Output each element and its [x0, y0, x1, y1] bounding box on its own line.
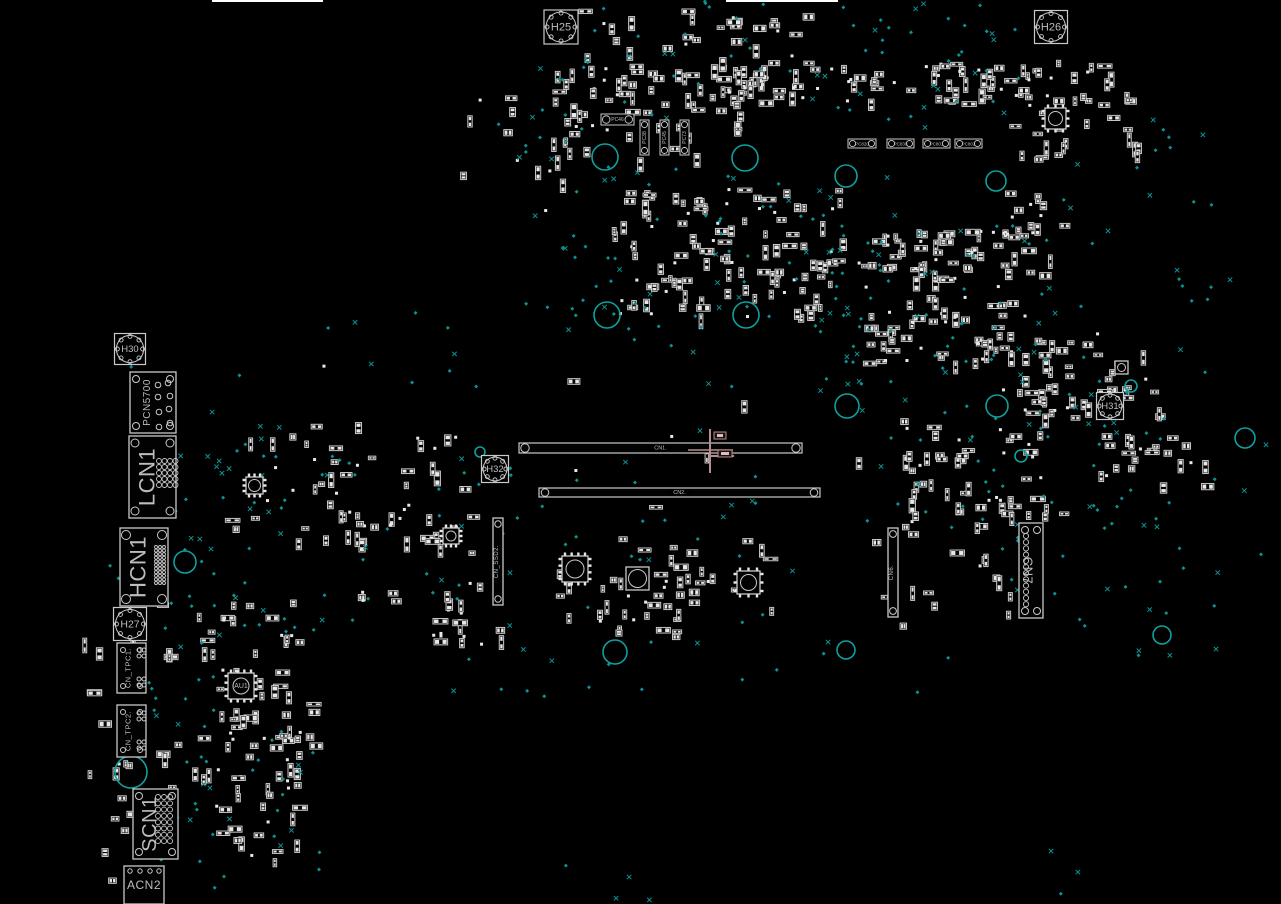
smd-part [958, 70, 961, 73]
smd-part [83, 638, 87, 653]
test-point [221, 496, 225, 500]
smd-part [1031, 455, 1034, 458]
smd-part [689, 589, 699, 595]
test-point [459, 524, 463, 528]
slot-cn2[interactable]: CN2. [539, 488, 820, 497]
test-point [227, 466, 231, 470]
smd-part [430, 462, 435, 475]
smd-part [627, 47, 633, 60]
test-point [278, 531, 282, 535]
smd-part [643, 193, 656, 197]
test-point [946, 17, 950, 21]
smd-part [642, 201, 648, 215]
smd-part [479, 99, 482, 102]
plated-hole-ring [174, 551, 196, 573]
smd-part [1027, 443, 1030, 446]
smd-part [633, 253, 638, 260]
smd-part [389, 524, 392, 527]
test-point [525, 689, 529, 693]
connector-cn_tpc1[interactable]: CN_TPC1. [117, 643, 146, 693]
connector-scn1[interactable]: SCN1 [133, 789, 178, 859]
smd-part [632, 241, 636, 251]
smd-part [663, 45, 672, 51]
smd-part [654, 593, 663, 598]
smd-part [932, 71, 937, 85]
test-point [247, 546, 251, 550]
smd-part [940, 64, 949, 69]
test-point [330, 454, 334, 458]
test-point [233, 596, 237, 600]
smd-part [790, 92, 796, 106]
test-point [669, 344, 673, 348]
smd-part [271, 438, 275, 451]
test-point [521, 647, 525, 651]
hole-label: H30 [121, 344, 138, 355]
smd-part [629, 17, 635, 31]
test-point [799, 214, 803, 218]
test-point [477, 482, 481, 486]
test-point [277, 425, 281, 429]
test-point [200, 559, 204, 563]
smd-part [674, 564, 688, 570]
test-point [1092, 504, 1096, 508]
smd-part [920, 347, 923, 350]
connector-cn_ssd2[interactable]: CN_SSD2. [493, 518, 503, 605]
smd-part [721, 87, 725, 98]
plated-hole-ring [592, 144, 618, 170]
smd-part [627, 133, 633, 142]
test-point [636, 34, 640, 38]
test-point [761, 205, 765, 209]
chip-label: AU1 [234, 683, 248, 690]
smd-part [217, 768, 220, 771]
test-point [227, 817, 231, 821]
connector-hcn1[interactable]: HCN1 [120, 528, 168, 606]
smd-part [290, 434, 296, 440]
test-point [740, 620, 744, 624]
test-point [1067, 392, 1071, 396]
smd-part [876, 332, 888, 336]
mounting-hole-h31[interactable]: H31 [1097, 393, 1124, 420]
test-point [978, 3, 982, 7]
smd-part [919, 464, 922, 467]
smd-part [1057, 60, 1061, 66]
pcb-boardview-canvas[interactable]: CN1.CN2.PCN5700LCN1HCN1CN_TPC1.CN_TPC2.S… [0, 0, 1281, 904]
smd-part [924, 453, 929, 465]
mounting-hole-h27[interactable]: H27 [114, 608, 147, 641]
smd-part [272, 686, 278, 699]
chip[interactable] [440, 525, 463, 548]
chip[interactable] [1115, 361, 1128, 374]
connector-cn6[interactable]: CN6. [888, 528, 898, 617]
smd-part [1011, 216, 1014, 219]
smd-part [1024, 315, 1027, 318]
plated-hole-ring [986, 171, 1006, 191]
mounting-hole-h32[interactable]: H32 [482, 456, 509, 483]
smd-part [650, 506, 663, 510]
smd-part [286, 692, 291, 704]
smd-part [964, 78, 968, 92]
smd-part [468, 116, 472, 127]
test-point [924, 510, 928, 514]
smd-part [638, 158, 644, 172]
smd-part [743, 285, 748, 295]
chip[interactable] [559, 553, 592, 586]
smd-part [635, 279, 638, 282]
test-point [1209, 203, 1213, 207]
test-point [210, 410, 214, 414]
smd-part [1008, 504, 1021, 508]
test-point [989, 358, 993, 362]
chip[interactable] [243, 474, 267, 498]
test-point [855, 352, 859, 356]
smd-part [999, 499, 1002, 502]
smd-part [734, 127, 742, 131]
smd-part [266, 499, 269, 502]
smd-part [305, 441, 309, 447]
smd-part [568, 148, 572, 159]
smd-part [694, 153, 700, 167]
test-point [822, 652, 826, 656]
smd-part [296, 640, 304, 645]
test-point [1259, 552, 1263, 556]
smd-part [99, 721, 112, 727]
test-point [296, 763, 300, 767]
test-point [730, 384, 734, 388]
connector-lcn1[interactable]: LCN1 [129, 436, 178, 518]
smd-part [914, 267, 917, 270]
smd-part [833, 259, 846, 263]
smd-part [1105, 474, 1108, 477]
smd-part [929, 319, 937, 324]
test-point [990, 31, 994, 35]
smd-part [1086, 403, 1092, 417]
chip[interactable] [734, 568, 764, 598]
smd-part [1009, 352, 1015, 366]
smd-part [804, 61, 814, 65]
smd-part [901, 335, 912, 341]
test-point [727, 249, 731, 253]
smd-part [1007, 611, 1011, 619]
smd-part [769, 290, 773, 299]
test-point [818, 388, 822, 392]
test-point [272, 834, 276, 838]
connector-cn7[interactable]: CN7 [1019, 523, 1043, 618]
test-point [243, 623, 247, 627]
smd-part [276, 772, 282, 781]
test-point [729, 503, 733, 507]
smd-part [800, 288, 805, 294]
test-point [369, 362, 373, 366]
smd-part [711, 65, 717, 79]
smd-part [644, 601, 647, 604]
connector-pc73[interactable]: PC73 [680, 120, 689, 155]
smd-part [1073, 97, 1077, 105]
connector-pc830[interactable]: PC830 [887, 139, 914, 148]
smd-part [1068, 341, 1074, 345]
test-point [108, 564, 112, 568]
connector-pc38[interactable]: PC38 [640, 120, 649, 155]
smd-part [830, 67, 833, 70]
test-point [851, 344, 855, 348]
smd-part [565, 119, 571, 126]
smd-part [610, 577, 616, 582]
test-point [515, 516, 519, 520]
connector-pc801[interactable]: PC801 [923, 139, 950, 148]
connector-label: ACN2 [127, 878, 161, 892]
smd-part [828, 281, 832, 287]
test-point [647, 558, 651, 562]
smd-part [808, 311, 814, 321]
smd-part [553, 98, 558, 106]
test-point [946, 656, 950, 660]
test-point [811, 217, 815, 221]
test-point [909, 30, 913, 34]
test-point [279, 506, 283, 510]
smd-part [469, 582, 472, 585]
smd-part [309, 709, 320, 715]
smd-part [958, 438, 961, 441]
smd-part [217, 831, 230, 835]
test-point [467, 657, 471, 661]
smd-part [924, 591, 934, 595]
smd-part [682, 9, 695, 14]
smd-part [211, 650, 215, 660]
smd-part [783, 243, 798, 248]
test-point [150, 687, 154, 691]
test-point [1046, 435, 1050, 439]
test-point [147, 681, 151, 685]
test-point [992, 353, 996, 357]
test-point [965, 404, 969, 408]
smd-part [676, 592, 684, 598]
test-point [821, 213, 825, 217]
test-point [474, 385, 478, 389]
smd-part [693, 37, 701, 42]
smd-part [644, 299, 650, 312]
test-point [987, 490, 991, 494]
smd-part [1178, 460, 1183, 473]
smd-part [654, 572, 667, 576]
connector-label: PC38 [642, 131, 648, 144]
test-point [293, 625, 297, 629]
mounting-hole-h30[interactable]: H30 [115, 334, 146, 365]
smd-part [263, 737, 266, 740]
smd-part [282, 712, 290, 718]
smd-part [994, 243, 1004, 248]
smd-part [758, 207, 761, 210]
test-point [663, 518, 667, 522]
smd-part [884, 359, 887, 362]
connector-pc820[interactable]: PC820 [848, 139, 876, 148]
smd-part [1010, 512, 1014, 525]
plated-hole-ring [115, 756, 147, 788]
test-point [858, 92, 862, 96]
test-point [572, 234, 576, 238]
smd-part [1065, 365, 1072, 369]
smd-part [286, 758, 289, 761]
test-point [878, 269, 882, 273]
smd-part [1050, 77, 1053, 80]
connector-pc45[interactable]: PC45 [660, 120, 669, 155]
smd-part [1005, 79, 1017, 83]
smd-part [1008, 333, 1014, 342]
smd-part [773, 244, 779, 256]
mounting-hole-h26[interactable]: H26 [1035, 11, 1068, 44]
smd-part [995, 496, 998, 499]
slot-cn1[interactable]: CN1. [519, 443, 802, 453]
test-point [842, 313, 846, 317]
smd-part [1043, 513, 1048, 521]
smd-part [1026, 95, 1033, 100]
smd-part [623, 610, 627, 619]
smd-part [322, 365, 325, 368]
chip[interactable] [626, 567, 649, 590]
test-point [973, 71, 977, 75]
connector-pc802[interactable]: PC802 [955, 139, 982, 148]
smd-part [739, 90, 744, 101]
mounting-hole-h25[interactable]: H25 [544, 10, 578, 44]
smd-part [817, 261, 823, 271]
test-point [530, 115, 534, 119]
smd-part [1023, 353, 1029, 365]
smd-part [599, 620, 602, 623]
smd-part [1160, 483, 1166, 493]
smd-part [285, 635, 289, 643]
smd-part [955, 458, 960, 468]
smd-part [792, 86, 795, 89]
test-point [787, 261, 791, 265]
smd-part [776, 29, 779, 32]
smd-part [933, 66, 940, 71]
smd-part [230, 718, 236, 722]
test-point [606, 256, 610, 260]
smd-part [544, 209, 547, 212]
test-point [1158, 580, 1162, 584]
smd-part [496, 627, 504, 633]
smd-part [920, 481, 927, 487]
test-point [198, 859, 202, 863]
smd-part [1026, 512, 1030, 520]
smd-part [650, 312, 653, 315]
smd-part [356, 521, 363, 526]
smd-part [694, 207, 708, 211]
smd-part [260, 692, 264, 699]
smd-part [900, 623, 906, 629]
smd-part [445, 592, 450, 602]
test-point [1097, 442, 1101, 446]
smd-part [638, 548, 651, 552]
smd-part [246, 754, 253, 760]
smd-part [964, 296, 967, 299]
test-point [1050, 500, 1054, 504]
connector-acn2[interactable]: ACN2 [124, 866, 164, 904]
smd-part [676, 70, 682, 82]
test-point [826, 640, 830, 644]
test-point [1075, 162, 1079, 166]
connector-label: CN_SSD2. [494, 545, 500, 578]
smd-part [193, 768, 198, 781]
test-point [1079, 304, 1083, 308]
smd-part [619, 578, 623, 590]
smd-part [907, 451, 912, 461]
smd-part [1056, 348, 1067, 354]
test-point [1155, 525, 1159, 529]
smd-part [670, 146, 679, 151]
test-point [540, 504, 544, 508]
smd-part [794, 204, 800, 212]
smd-part [621, 222, 627, 234]
smd-part [773, 211, 776, 214]
test-point [283, 498, 287, 502]
smd-part [1039, 353, 1051, 358]
smd-part [791, 54, 794, 57]
smd-part [748, 85, 753, 98]
test-point [750, 499, 754, 503]
test-point [960, 50, 964, 54]
smd-part [754, 71, 764, 77]
hole-label: H26 [1041, 22, 1061, 34]
test-point [582, 65, 586, 69]
smd-part [919, 263, 925, 267]
test-point [270, 738, 274, 742]
smd-part [1002, 451, 1005, 454]
smd-part [665, 290, 668, 293]
chip-au1[interactable]: AU1 [225, 670, 258, 703]
test-point [575, 190, 579, 194]
connector-cn_tpc2[interactable]: CN_TPC2. [117, 705, 146, 757]
smd-part [794, 70, 799, 84]
smd-part [1132, 457, 1138, 463]
smd-part [346, 531, 351, 545]
test-point [717, 305, 721, 309]
hole-label: H27 [120, 619, 139, 631]
smd-part [96, 648, 102, 660]
smd-part [673, 261, 676, 264]
test-point [922, 105, 926, 109]
chip[interactable] [1042, 105, 1070, 133]
test-point [1022, 239, 1026, 243]
smd-part [217, 687, 224, 691]
test-point [887, 117, 891, 121]
test-point [278, 843, 282, 847]
smd-part [313, 458, 316, 461]
smd-part [753, 25, 765, 31]
smd-part [619, 537, 627, 542]
connector-pc46[interactable]: PC46 [601, 114, 634, 125]
smd-part [665, 580, 668, 583]
connector-label: PC73 [682, 131, 688, 144]
smd-part [739, 268, 744, 278]
smd-part [742, 401, 747, 413]
smd-part [672, 281, 677, 287]
smd-part [743, 86, 746, 89]
test-point [787, 198, 791, 202]
smd-part [846, 99, 849, 102]
connector-pcn5700[interactable]: PCN5700 [130, 372, 176, 433]
smd-part [966, 482, 971, 496]
smd-part [342, 513, 346, 522]
test-point [1032, 350, 1036, 354]
smd-part [616, 630, 622, 636]
smd-part [612, 227, 616, 234]
test-point [317, 850, 321, 854]
smd-part [936, 96, 942, 103]
smd-part [692, 108, 705, 112]
smd-part [932, 602, 938, 610]
test-point [873, 28, 877, 32]
test-point [1000, 547, 1004, 551]
